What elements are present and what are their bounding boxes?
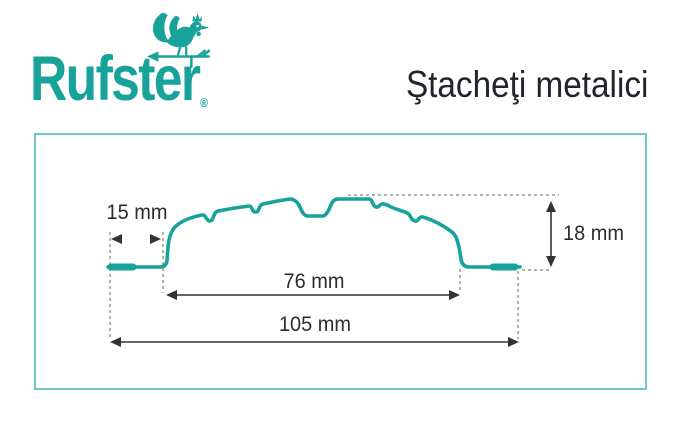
logo-text: Rufster <box>30 48 199 111</box>
page-title: Ştacheţi metalici <box>406 64 648 106</box>
dimension-label-profile-height: 18 mm <box>563 223 639 244</box>
dimension-label-total-width: 105 mm <box>256 314 374 335</box>
rufster-logo: Rufster ® <box>28 8 248 118</box>
dimension-label-body-width: 76 mm <box>265 271 364 292</box>
page: Rufster ® Ştacheţi metalici <box>0 0 681 422</box>
registered-trademark: ® <box>200 95 208 110</box>
diagram-panel: 15 mm 76 mm 105 mm 18 mm <box>34 133 647 390</box>
dimension-label-side-wing-width: 15 mm <box>97 202 177 223</box>
profile-drawing <box>36 135 645 388</box>
